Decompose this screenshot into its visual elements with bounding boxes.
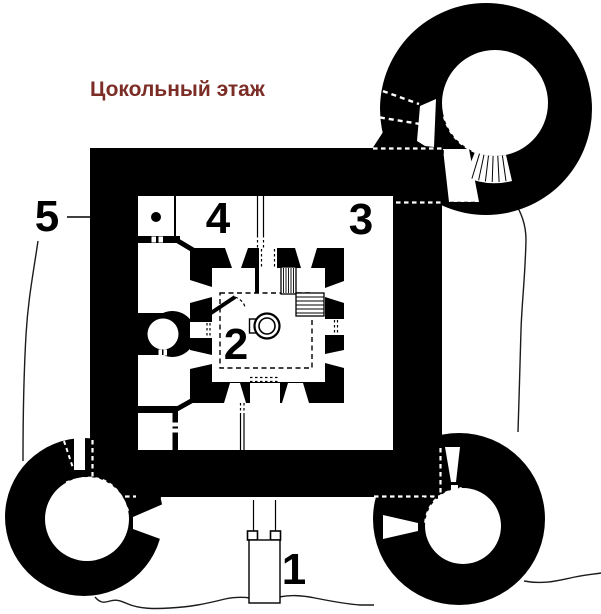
label-5: 5 bbox=[35, 192, 59, 241]
entrance-ramp bbox=[249, 540, 280, 603]
door-mark bbox=[159, 350, 163, 356]
post-dot bbox=[151, 212, 161, 222]
label-2: 2 bbox=[224, 320, 248, 369]
door-mark bbox=[159, 237, 164, 243]
sw-gallery-bar bbox=[137, 406, 178, 413]
book-page: Цокольный этаж 5 4 3 2 1 bbox=[0, 0, 601, 614]
corner-room-bar bbox=[133, 236, 180, 243]
floor-plan: Цокольный этаж 5 4 3 2 1 bbox=[0, 0, 601, 614]
door-mark bbox=[164, 350, 168, 356]
label-4: 4 bbox=[206, 194, 231, 243]
round-room-interior bbox=[148, 319, 179, 350]
plan-title: Цокольный этаж bbox=[90, 78, 266, 101]
label-3: 3 bbox=[349, 195, 373, 244]
gate-pier bbox=[271, 531, 281, 540]
door-mark bbox=[173, 423, 179, 427]
tower-northeast-interior bbox=[442, 50, 548, 156]
interior-wall-stub bbox=[255, 268, 259, 293]
gate-pier bbox=[248, 531, 258, 540]
label-1: 1 bbox=[282, 545, 306, 594]
door-mark bbox=[173, 429, 179, 433]
tower-southwest-slot bbox=[74, 438, 85, 470]
door-mark bbox=[152, 237, 157, 243]
